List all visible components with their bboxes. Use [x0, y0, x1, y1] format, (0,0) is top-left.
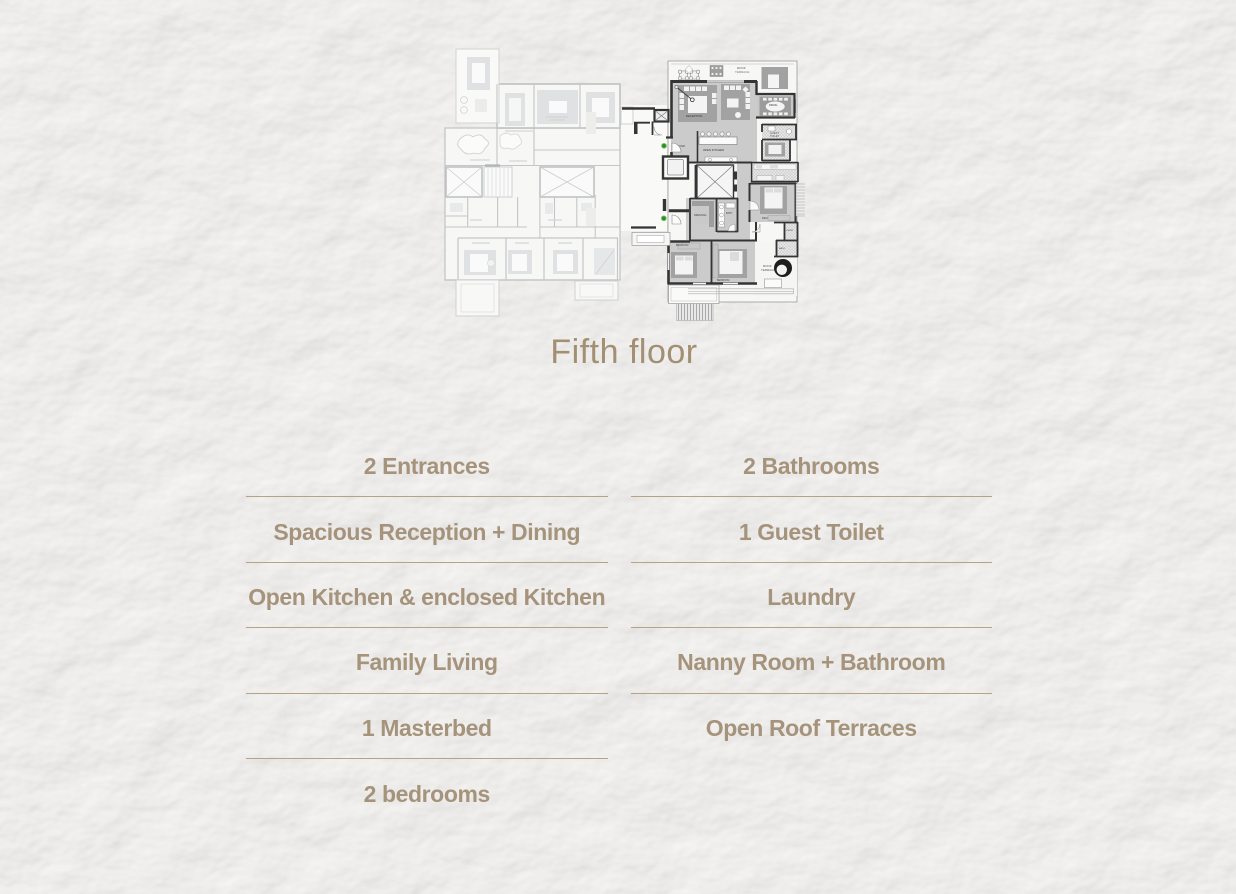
svg-text:TOILET: TOILET	[770, 134, 779, 138]
svg-text:BATH: BATH	[726, 212, 732, 215]
svg-text:BEDROOM: BEDROOM	[717, 279, 729, 282]
svg-text:DRESSING: DRESSING	[694, 214, 707, 217]
svg-text:OPEN KITCHEN: OPEN KITCHEN	[703, 148, 724, 152]
svg-text:TERRACE: TERRACE	[735, 70, 749, 74]
svg-text:RECEPTION: RECEPTION	[686, 114, 702, 118]
svg-text:BEDROOM: BEDROOM	[676, 244, 688, 247]
svg-text:DINING: DINING	[769, 104, 778, 107]
svg-text:LNDRY: LNDRY	[786, 230, 794, 232]
svg-text:TERRACE: TERRACE	[761, 268, 775, 272]
svg-text:BATH: BATH	[779, 247, 785, 250]
